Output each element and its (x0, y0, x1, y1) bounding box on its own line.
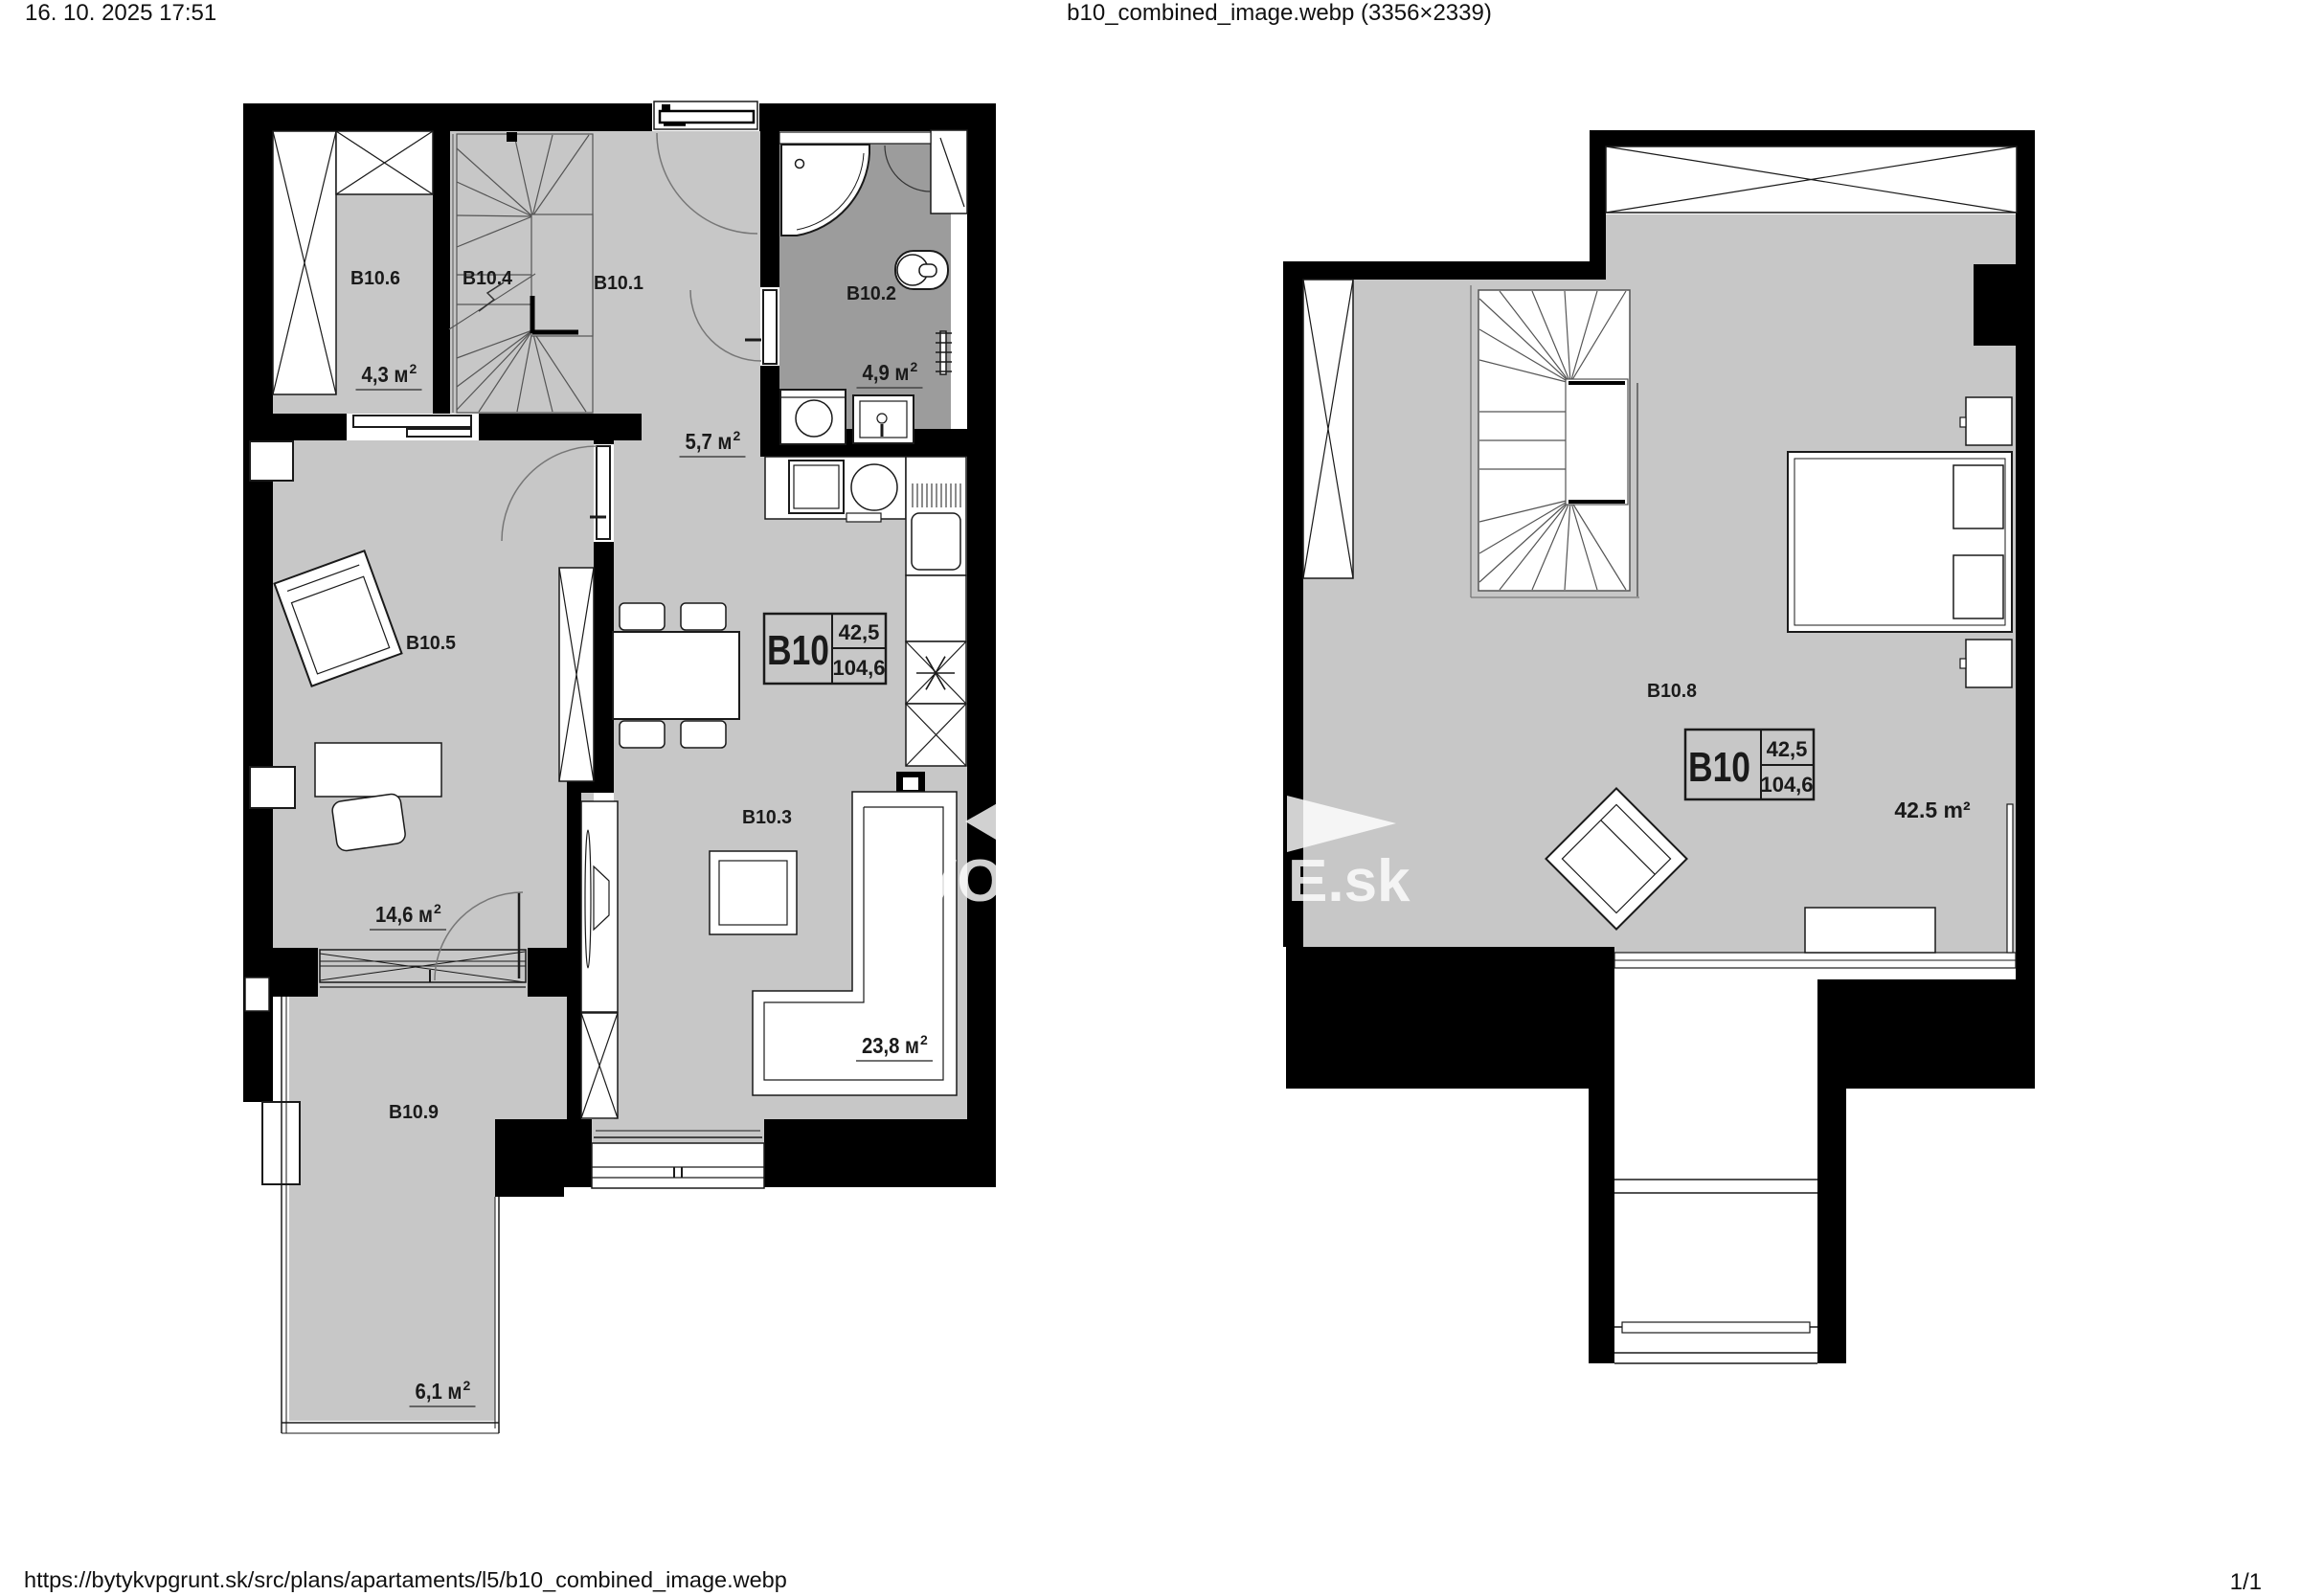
svg-text:14,6 м: 14,6 м (375, 902, 433, 927)
svg-text:B10.1: B10.1 (594, 273, 643, 294)
svg-text:B10.2: B10.2 (846, 283, 896, 304)
svg-text:104,6: 104,6 (1760, 773, 1813, 797)
svg-text:VO: VO (917, 848, 1004, 914)
svg-text:E.sk: E.sk (1288, 848, 1411, 914)
svg-text:2: 2 (733, 428, 741, 443)
svg-text:42.5 m²: 42.5 m² (1894, 798, 1971, 822)
svg-text:B10.8: B10.8 (1647, 681, 1697, 702)
svg-text:4,3 м: 4,3 м (362, 362, 409, 387)
svg-text:2: 2 (911, 359, 918, 374)
svg-text:2: 2 (434, 901, 441, 916)
svg-text:B10.3: B10.3 (742, 807, 792, 828)
svg-text:5,7 м: 5,7 м (686, 429, 733, 454)
svg-text:2: 2 (920, 1032, 928, 1047)
svg-text:42,5: 42,5 (839, 620, 880, 644)
svg-text:B10.5: B10.5 (406, 633, 456, 654)
svg-text:4,9 м: 4,9 м (863, 360, 910, 385)
svg-text:B10: B10 (1688, 744, 1750, 791)
svg-text:2: 2 (410, 361, 418, 376)
svg-text:2: 2 (463, 1378, 471, 1393)
svg-text:23,8 м: 23,8 м (862, 1033, 919, 1058)
svg-text:B10.6: B10.6 (350, 268, 400, 289)
svg-text:6,1 м: 6,1 м (416, 1379, 463, 1404)
svg-text:B10: B10 (767, 627, 829, 674)
svg-text:104,6: 104,6 (832, 656, 885, 680)
svg-text:B10.4: B10.4 (463, 268, 513, 289)
svg-text:42,5: 42,5 (1767, 737, 1808, 761)
svg-text:B10.9: B10.9 (389, 1102, 439, 1123)
